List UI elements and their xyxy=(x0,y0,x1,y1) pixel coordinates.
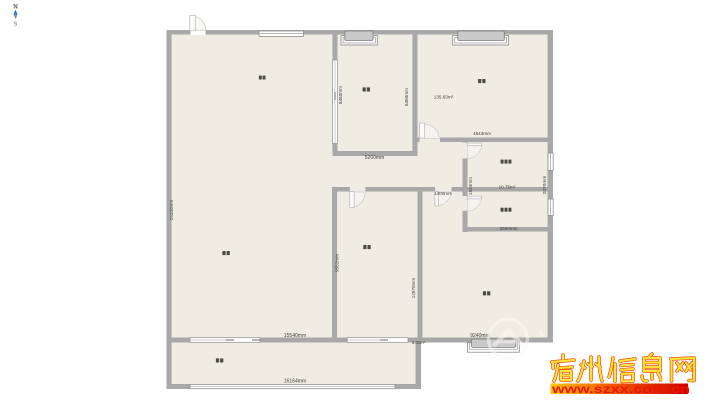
svg-text:5200mm: 5200mm xyxy=(365,155,384,161)
svg-text:2070mm: 2070mm xyxy=(542,176,548,195)
svg-text:25330mm: 25330mm xyxy=(169,200,174,221)
svg-text:10.75m²: 10.75m² xyxy=(499,184,516,189)
svg-text:9240mm: 9240mm xyxy=(470,333,489,339)
svg-text:3590mm: 3590mm xyxy=(500,226,518,231)
svg-text:16164mm: 16164mm xyxy=(284,379,306,385)
svg-text:www.szxx.com.cn: www.szxx.com.cn xyxy=(551,384,690,396)
svg-text:1524mm: 1524mm xyxy=(468,177,473,195)
svg-text:8460mm: 8460mm xyxy=(338,86,343,104)
svg-text:135.63m²: 135.63m² xyxy=(434,95,454,100)
svg-text:15540mm: 15540mm xyxy=(284,333,306,339)
svg-text:12870mm: 12870mm xyxy=(411,278,416,299)
svg-text:S: S xyxy=(14,22,18,28)
svg-text:8460mm: 8460mm xyxy=(404,88,409,106)
svg-text:8.00m²: 8.00m² xyxy=(412,340,426,345)
svg-text:4543mm: 4543mm xyxy=(473,131,491,136)
svg-text:1400mm: 1400mm xyxy=(434,191,452,196)
svg-text:9552mm: 9552mm xyxy=(335,254,340,272)
